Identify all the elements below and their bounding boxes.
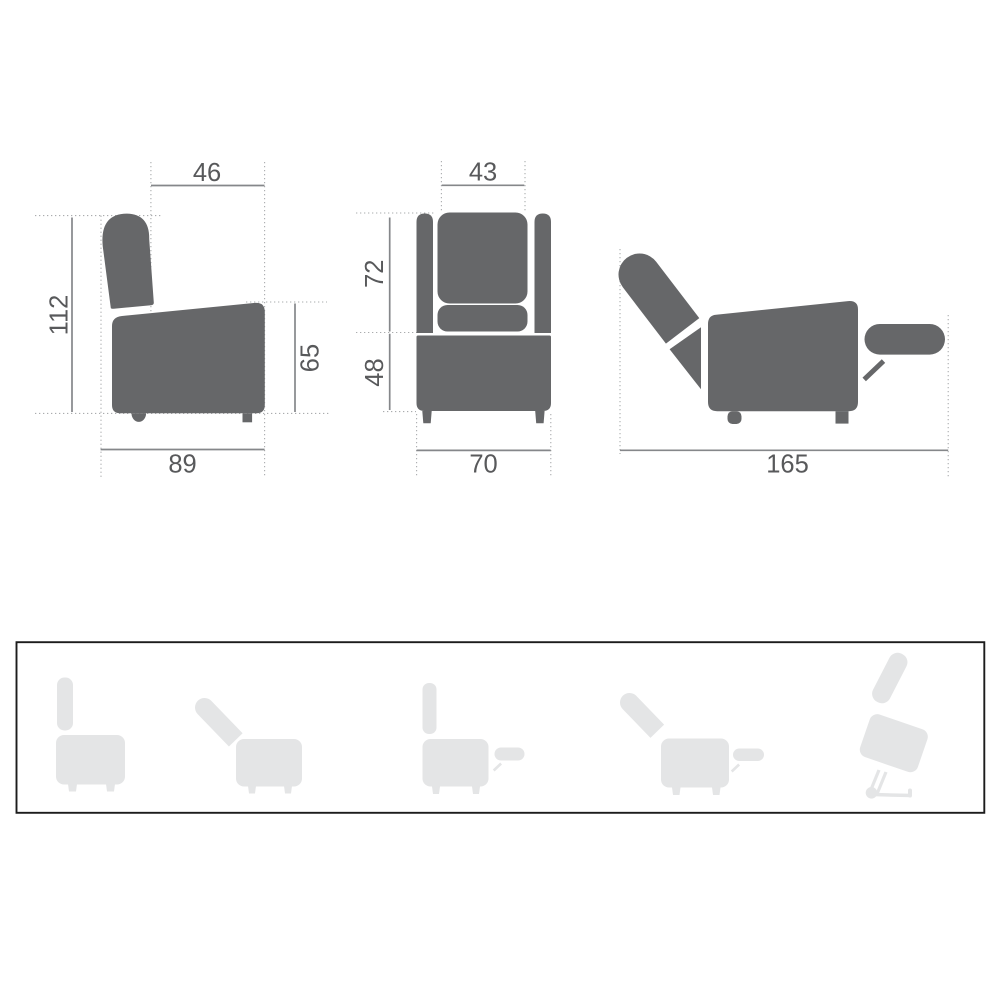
svg-text:70: 70 xyxy=(469,451,497,479)
svg-text:46: 46 xyxy=(193,159,221,187)
svg-text:89: 89 xyxy=(168,451,196,479)
svg-text:43: 43 xyxy=(469,159,497,187)
svg-text:65: 65 xyxy=(297,344,325,372)
svg-text:72: 72 xyxy=(361,260,389,288)
svg-text:165: 165 xyxy=(766,451,809,479)
svg-text:112: 112 xyxy=(46,295,74,336)
svg-text:48: 48 xyxy=(361,358,389,386)
